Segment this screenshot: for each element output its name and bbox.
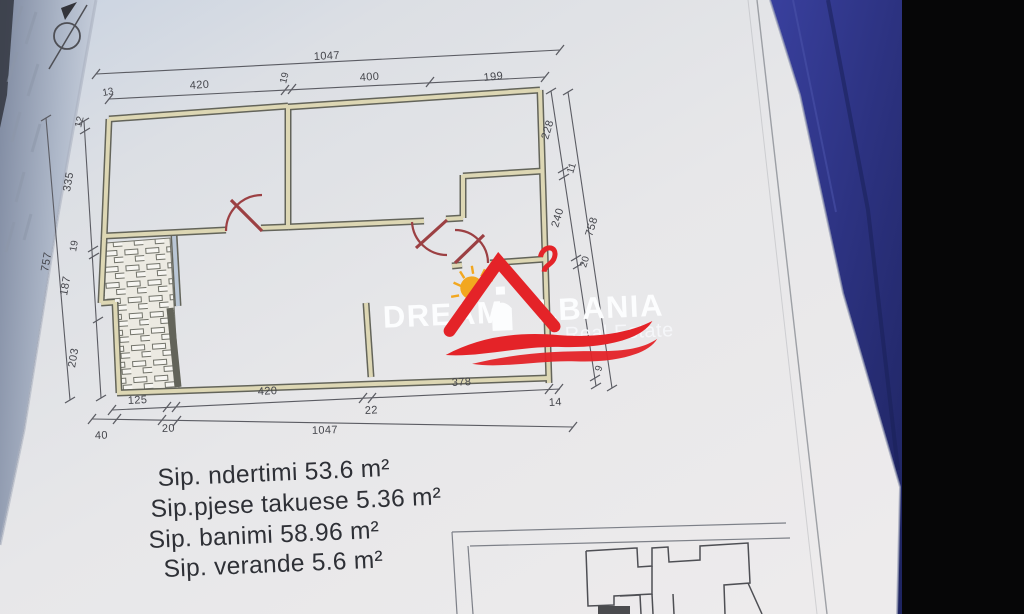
house-door [491, 302, 512, 331]
scene: 1047 420 19 400 199 13 12 335 19 187 203… [0, 0, 1024, 614]
dim-bot2-seg2: 1047 [312, 424, 338, 437]
dim-top-seg3: 199 [483, 70, 504, 84]
keyplan-hatch-block [598, 606, 630, 614]
dim-bot2-seg1: 20 [162, 423, 175, 435]
dim-bot1-seg0: 125 [128, 394, 148, 407]
dim-top-total: 1047 [314, 50, 341, 63]
dim-top-seg2: 400 [359, 71, 379, 84]
dim-bot1-seg1: 420 [258, 385, 278, 398]
dim-bot1-seg2: 22 [365, 404, 379, 417]
dim-bot2-seg0: 40 [95, 430, 108, 442]
dim-bot1-seg4: 14 [549, 396, 563, 409]
watermark-brand-left: DREAM [382, 294, 505, 334]
house-window [496, 286, 505, 294]
photo-of-floorplan-page: 1047 420 19 400 199 13 12 335 19 187 203… [0, 0, 1024, 614]
dim-top-seg0: 420 [189, 79, 209, 92]
dim-bot1-seg3: 378 [452, 376, 472, 389]
